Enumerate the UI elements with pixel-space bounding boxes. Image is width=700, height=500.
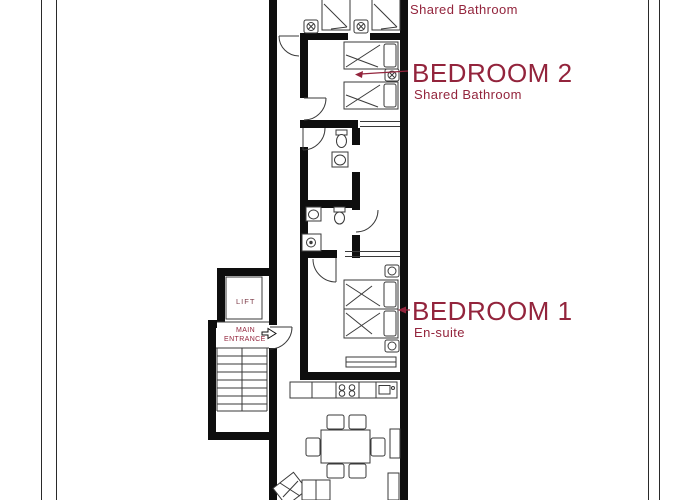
top-room-beds (304, 0, 400, 33)
top-room-subtitle: Shared Bathroom (410, 3, 518, 16)
lift-label: LIFT (236, 298, 255, 306)
floor-plan-sheet: Shared Bathroom BEDROOM 2 Shared Bathroo… (0, 0, 700, 500)
main-entrance-label-line1: MAIN (236, 327, 255, 334)
staircase (217, 348, 267, 411)
wall-units (388, 429, 400, 500)
bedroom2-title: BEDROOM 2 (412, 60, 573, 86)
bathroom1-fixtures (332, 130, 348, 167)
bedroom2-subtitle: Shared Bathroom (414, 88, 522, 101)
floor-plan (0, 0, 700, 500)
bedroom1-title: BEDROOM 1 (412, 298, 573, 324)
bedroom1-bed (344, 265, 399, 367)
bedroom1-subtitle: En-suite (414, 326, 465, 339)
bedroom2-beds (344, 42, 399, 109)
kitchen-counter (290, 382, 397, 398)
bathroom2-fixtures (302, 207, 345, 251)
main-entrance-label-line2: ENTRANCE (224, 336, 266, 343)
sofa (273, 472, 330, 500)
bedroom2-arrow-icon (355, 71, 363, 78)
dining-table (306, 415, 385, 478)
